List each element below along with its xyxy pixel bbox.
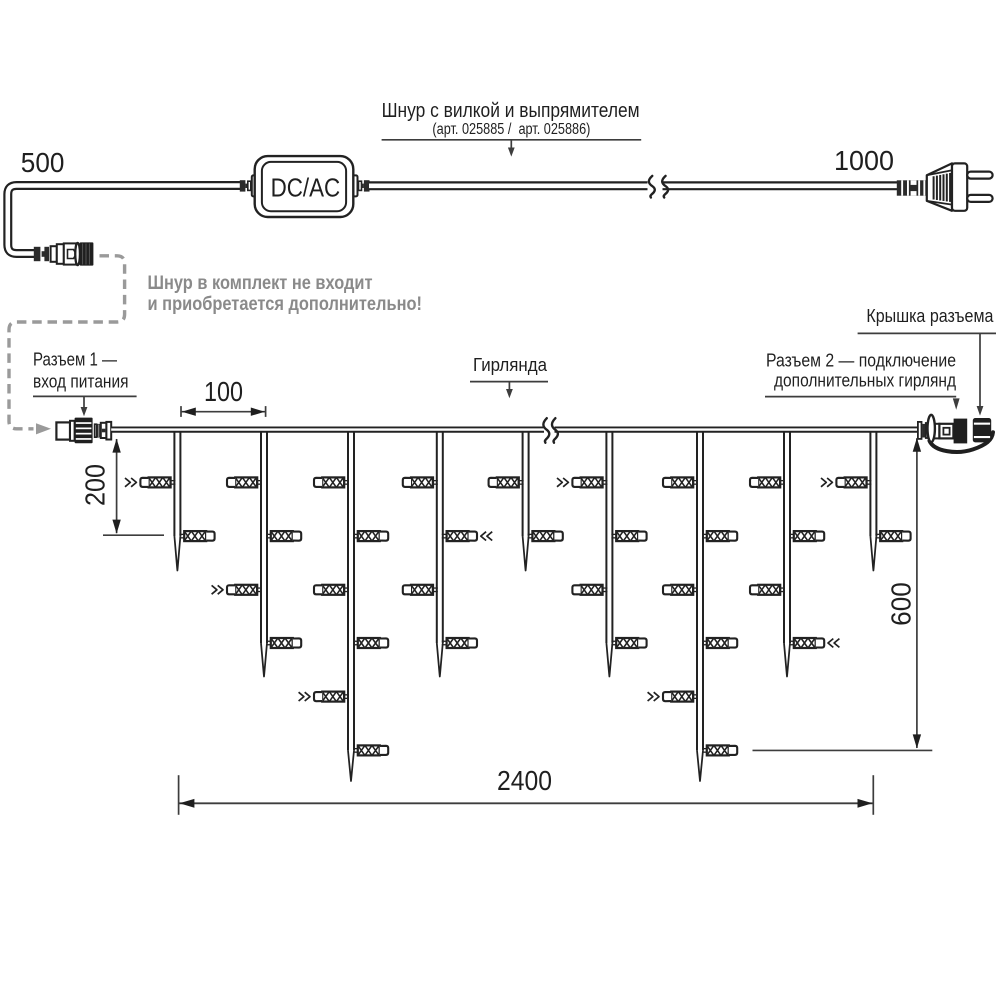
svg-text:Гирлянда: Гирлянда <box>473 354 548 375</box>
svg-text:вход питания: вход питания <box>33 371 129 392</box>
svg-text:и приобретается дополнительно!: и приобретается дополнительно! <box>148 294 423 315</box>
svg-text:Шнур с вилкой и выпрямителем: Шнур с вилкой и выпрямителем <box>382 99 640 122</box>
svg-text:Разъем 1 —: Разъем 1 — <box>33 349 117 370</box>
svg-text:дополнительных гирлянд: дополнительных гирлянд <box>774 369 956 390</box>
svg-text:1000: 1000 <box>834 145 894 176</box>
svg-text:500: 500 <box>21 147 65 178</box>
svg-text:2400: 2400 <box>497 765 552 796</box>
svg-text:600: 600 <box>886 582 917 626</box>
svg-text:Разъем 2 — подключение: Разъем 2 — подключение <box>766 350 956 371</box>
svg-text:100: 100 <box>204 376 243 407</box>
svg-text:Крышка разъема: Крышка разъема <box>866 305 994 326</box>
svg-text:(арт. 025885 / арт. 025886): (арт. 025885 / арт. 025886) <box>432 121 590 138</box>
svg-text:200: 200 <box>80 464 111 506</box>
svg-text:Шнур в комплект не входит: Шнур в комплект не входит <box>148 273 373 294</box>
svg-text:DC/AC: DC/AC <box>271 173 341 203</box>
